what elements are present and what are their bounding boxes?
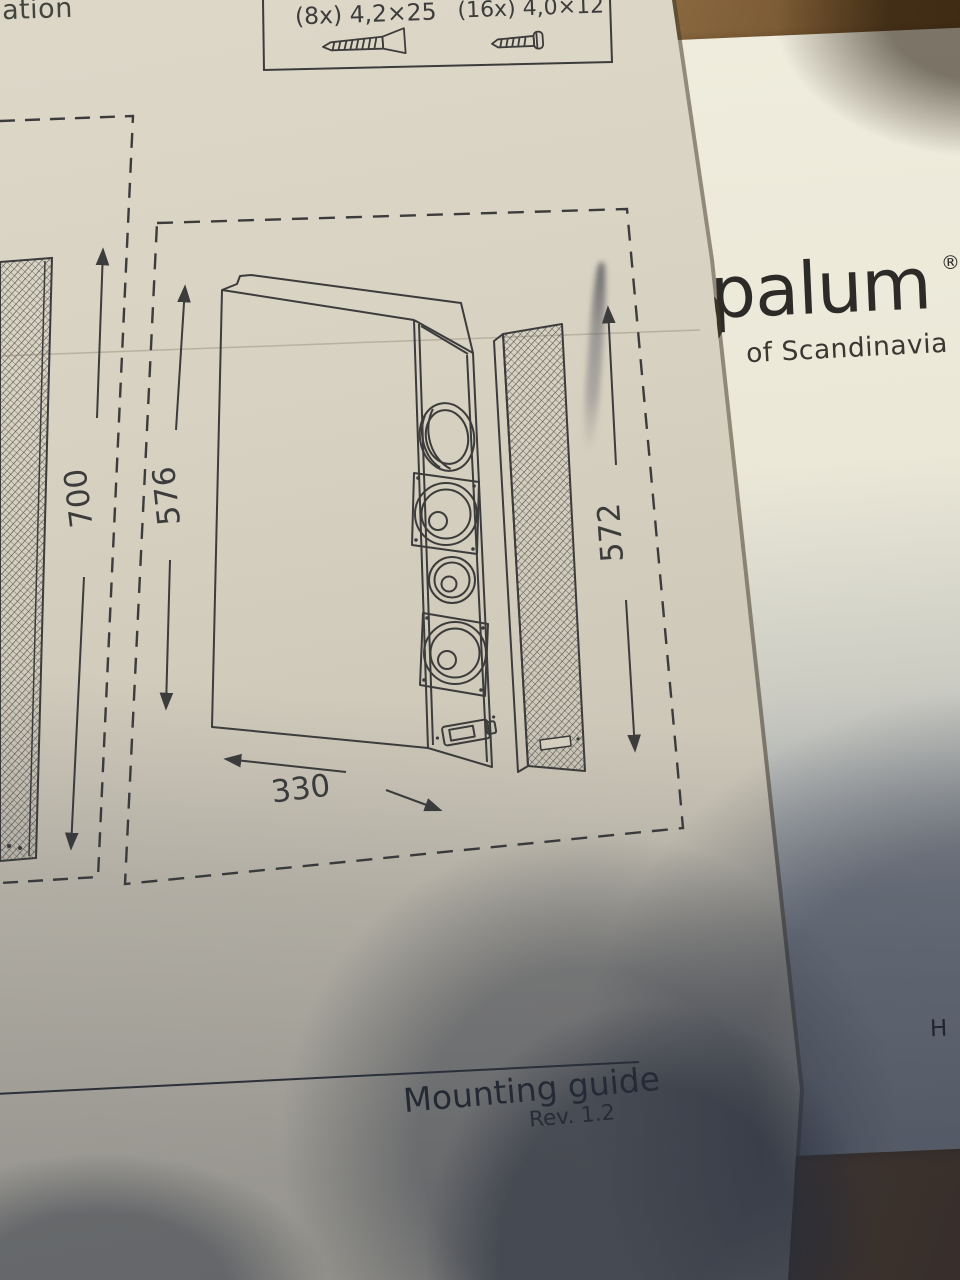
screw-spec-1: (8x) 4,2×25: [294, 0, 437, 30]
countersunk-screw-icon: [322, 28, 406, 59]
partial-heading: ation: [1, 0, 73, 26]
dimension-330: [226, 759, 440, 810]
screw-spec-2: (16x) 4,0×12: [457, 0, 604, 24]
speaker-cabinet-drawing: [212, 275, 499, 767]
left-speaker-grille-partial: [0, 258, 52, 861]
dimension-572-label: 572: [591, 502, 631, 564]
photo-of-mounting-guide: palum ® of Scandinavia H (8x) 4,2×25 (16…: [0, 0, 960, 1280]
dimension-330-label: 330: [269, 768, 332, 811]
paper-crease: [0, 330, 700, 356]
dimension-576-label: 576: [146, 465, 188, 528]
panhead-screw-icon: [491, 31, 543, 52]
front-grille-drawing: [494, 324, 585, 772]
dimension-700-label: 700: [58, 467, 101, 530]
dimension-700: [71, 250, 103, 848]
